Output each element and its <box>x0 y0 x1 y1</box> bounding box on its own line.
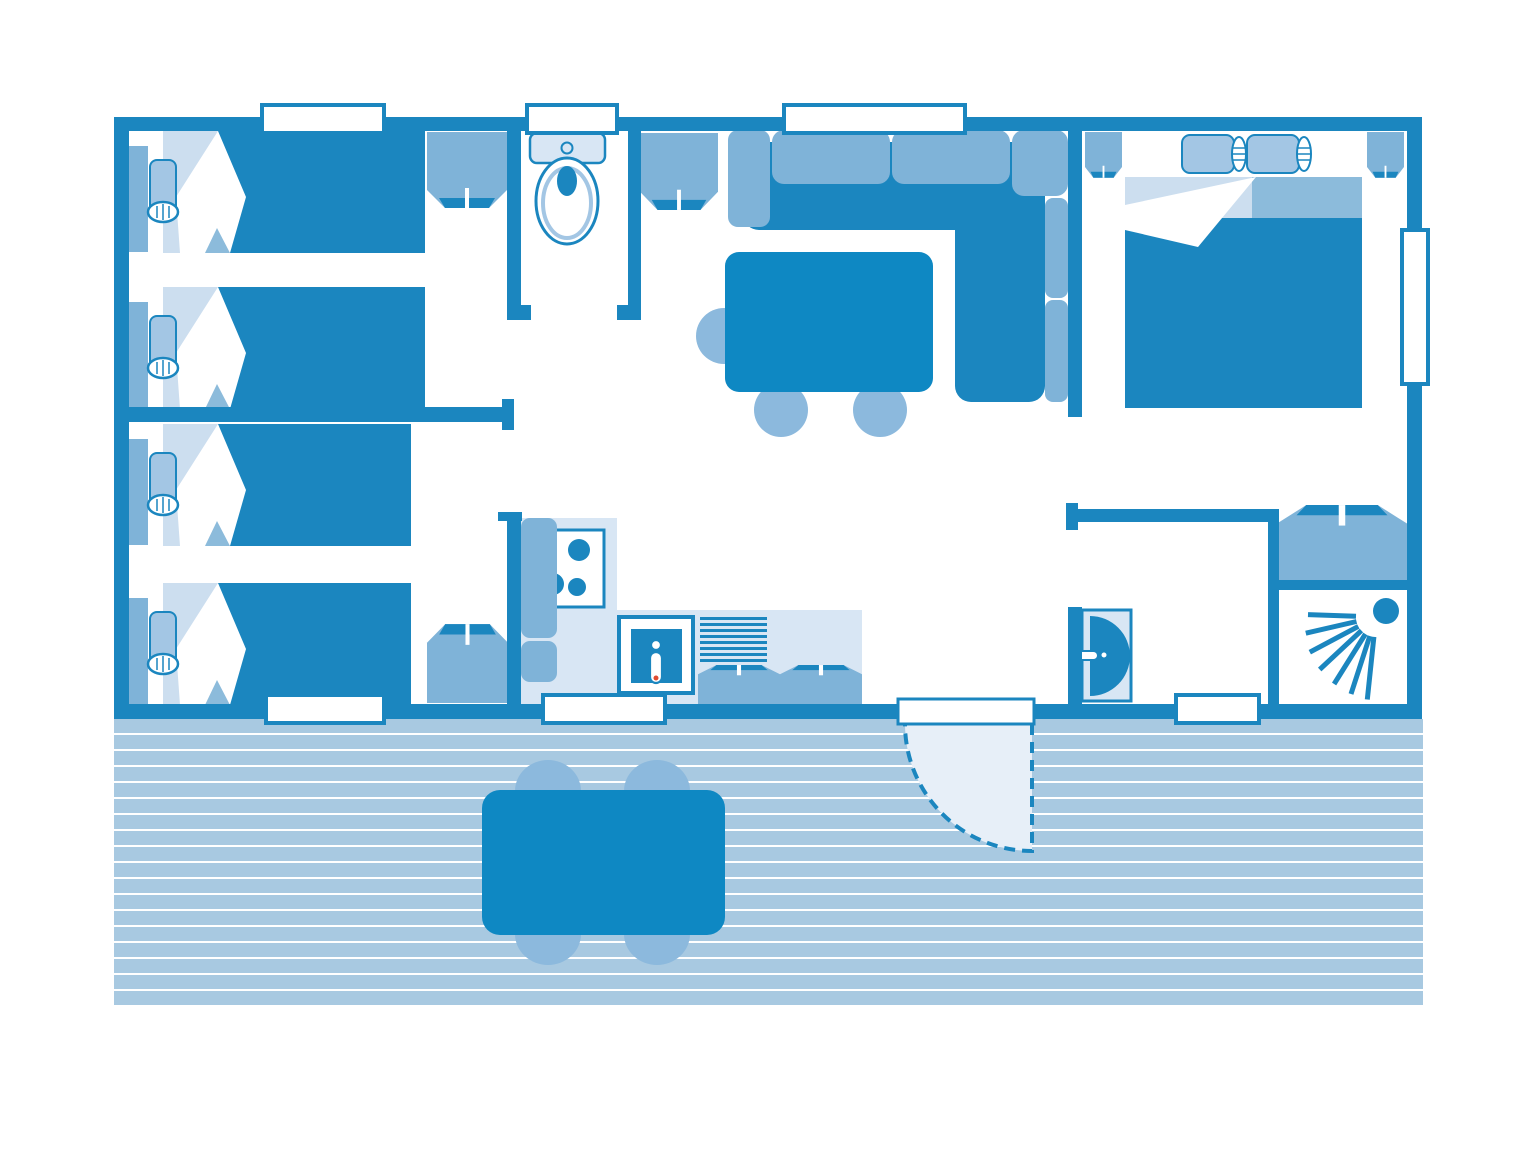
wardrobe-icon <box>640 133 718 210</box>
terrace <box>114 719 1423 1005</box>
master-bedroom <box>1085 130 1404 408</box>
deck-plank <box>114 991 1423 1005</box>
window-bottom-kitchen <box>543 695 665 723</box>
wall-cap <box>617 305 641 320</box>
drainer-line <box>700 623 767 626</box>
single-bed <box>127 131 411 253</box>
wardrobe-icon <box>427 132 507 208</box>
nightstand-icon <box>1085 132 1122 178</box>
sink-faucet-icon <box>651 640 661 650</box>
deck-plank <box>114 879 1423 893</box>
deck-plank <box>114 943 1423 957</box>
entrance-door-opening <box>898 699 1034 724</box>
deck-plank <box>114 927 1423 941</box>
interior-door-icon <box>1076 610 1131 701</box>
counter-storage-icon <box>780 665 862 704</box>
wardrobe-icon <box>1277 505 1407 583</box>
terrace-decking <box>114 719 1423 1005</box>
wall-left <box>114 117 129 719</box>
dining-table <box>725 252 933 392</box>
window-top-bedroom1 <box>262 105 384 133</box>
wall-bedroom2-right <box>507 512 521 704</box>
terrace-table <box>482 790 725 935</box>
fridge-icon <box>521 518 557 682</box>
living-room <box>696 130 1068 437</box>
wall-shower-left <box>1268 509 1279 704</box>
deck-plank <box>114 751 1423 765</box>
deck-plank <box>114 911 1423 925</box>
burner-icon <box>568 578 586 596</box>
deck-plank <box>114 959 1423 973</box>
single-bed <box>127 424 411 546</box>
wall-cap <box>507 305 531 320</box>
deck-plank <box>114 863 1423 877</box>
wall-bedrooms-divider <box>114 407 513 422</box>
wall-master-divider <box>1074 509 1268 522</box>
wall-living-master <box>1068 117 1082 417</box>
counter-storage-icon <box>698 665 780 704</box>
deck-plank <box>114 735 1423 749</box>
wardrobe-icon <box>427 624 508 703</box>
wall-shower-top <box>1268 580 1410 590</box>
wall-cap <box>498 512 522 521</box>
deck-plank <box>114 799 1423 813</box>
single-bed <box>127 287 411 409</box>
drainer-line <box>700 659 767 662</box>
wall-cap <box>1066 503 1078 530</box>
burner-icon <box>568 539 590 561</box>
deck-plank <box>114 831 1423 845</box>
deck-plank <box>114 847 1423 861</box>
window-top-living <box>784 105 965 133</box>
wall-wc-left <box>507 117 521 308</box>
drainer-line <box>700 635 767 638</box>
pillow-icon <box>1182 135 1234 173</box>
drainer-line <box>700 647 767 650</box>
wall-wc-right <box>628 117 641 308</box>
floorplan-canvas <box>0 0 1536 1152</box>
window-bottom-bedroom2 <box>266 695 384 723</box>
window-right-master <box>1402 230 1428 384</box>
wall-corridor-left <box>1068 607 1082 704</box>
drainer-line <box>700 629 767 632</box>
wall-right <box>1407 117 1422 719</box>
wall-cap <box>502 399 514 430</box>
window-top-wc <box>527 105 617 133</box>
deck-plank <box>114 815 1423 829</box>
deck-plank <box>114 975 1423 989</box>
single-bed <box>127 583 411 705</box>
window-bottom-corridor <box>1176 695 1259 723</box>
deck-plank <box>114 895 1423 909</box>
wall-bedroom1-right-upper <box>411 117 425 253</box>
wall-bedroom1-right-lower <box>411 287 425 407</box>
drainer-line <box>700 653 767 656</box>
nightstand-icon <box>1367 132 1404 178</box>
spray-ray <box>1308 615 1356 617</box>
shower-room <box>1277 505 1536 704</box>
drainer-line <box>700 617 767 620</box>
deck-plank <box>114 783 1423 797</box>
sink-icon <box>619 617 693 693</box>
double-bed <box>1125 130 1362 408</box>
deck-plank <box>114 767 1423 781</box>
drainer-line <box>700 641 767 644</box>
pillow-icon <box>1247 135 1299 173</box>
